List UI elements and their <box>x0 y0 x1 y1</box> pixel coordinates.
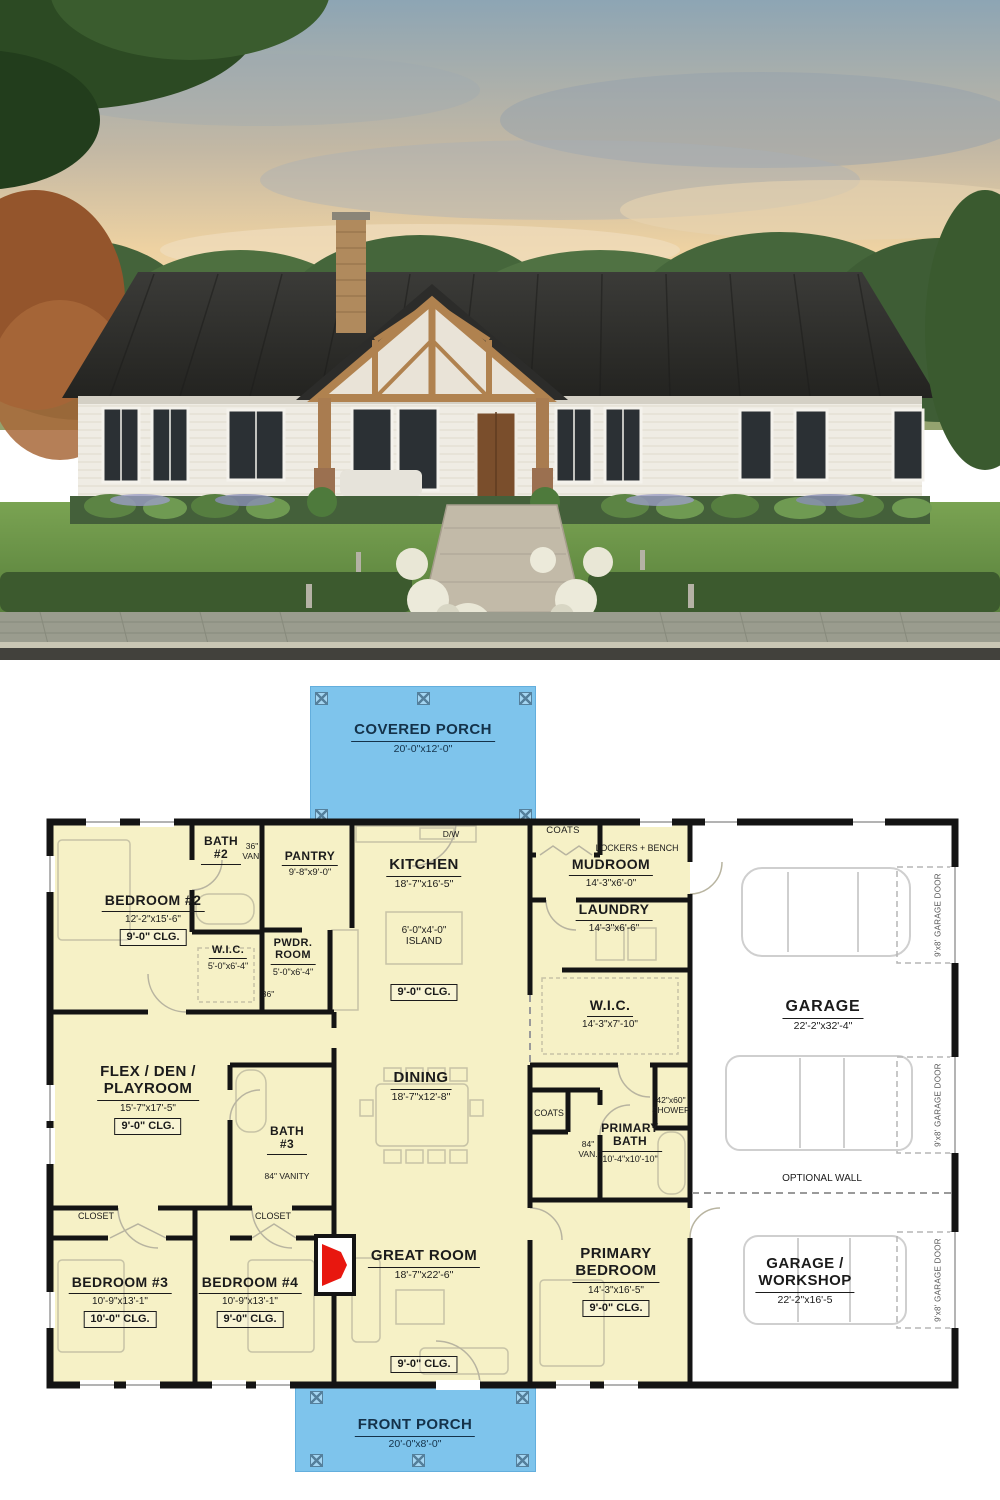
room-name: FLEX / DEN / PLAYROOM <box>97 1064 199 1101</box>
room-name: PRIMARY BEDROOM <box>572 1246 659 1283</box>
bath3-vanity-label: 84" VANITY <box>265 1172 310 1182</box>
room-name: W.I.C. <box>209 944 247 959</box>
room-name: PRIMARY BATH <box>598 1122 662 1152</box>
shower-label: 42"x60" SHOWER <box>652 1096 690 1115</box>
closet2-label: CLOSET <box>255 1211 291 1221</box>
garage-workshop-label: GARAGE / WORKSHOP 22'-2"x16'-5 <box>755 1256 854 1306</box>
dishwasher-label: D/W <box>443 830 460 840</box>
lockers-label: LOCKERS + BENCH <box>596 844 679 854</box>
room-dims: 18'-7"x16'-5" <box>395 877 454 891</box>
laundry-label: LAUNDRY 14'-3"x6'-6" <box>576 902 653 934</box>
room-dims: 12'-2"x15'-6" <box>125 912 181 925</box>
exterior-photo <box>0 0 1000 660</box>
room-dims: 5'-0"x6'-4" <box>273 965 313 977</box>
room-name: W.I.C. <box>587 998 634 1017</box>
covered-porch-label: COVERED PORCH 20'-0"x12'-0" <box>351 722 495 756</box>
yard <box>0 487 1000 660</box>
room-name: GARAGE / WORKSHOP <box>755 1256 854 1293</box>
pwdr-label: PWDR. ROOM 5'-0"x6'-4" <box>271 937 316 977</box>
hedge <box>0 572 412 612</box>
room-dims: 22'-2"x16'-5 <box>777 1293 832 1307</box>
bedroom3-label: BEDROOM #3 10'-9"x13'-1" 10'-0" CLG. <box>69 1275 172 1328</box>
van84-label: 84" VAN. <box>578 1140 597 1159</box>
room-name: PWDR. ROOM <box>271 937 316 965</box>
ceiling-height: 9'-0" CLG. <box>114 1118 181 1135</box>
wic-primary-label: W.I.C. 14'-3"x7'-10" <box>582 998 638 1030</box>
bedroom2-label: BEDROOM #2 12'-2"x15'-6" 9'-0" CLG. <box>102 893 205 946</box>
ceiling-height: 10'-0" CLG. <box>83 1311 156 1328</box>
room-name: MUDROOM <box>569 857 653 876</box>
room-dims: 22'-2"x32'-4" <box>794 1019 853 1033</box>
room-dims: 20'-0"x12'-0" <box>394 742 453 756</box>
bedroom4-label: BEDROOM #4 10'-9"x13'-1" 9'-0" CLG. <box>199 1275 302 1328</box>
room-dims: 10'-9"x13'-1" <box>92 1294 148 1307</box>
floor-plan: COVERED PORCH 20'-0"x12'-0" FRONT PORCH … <box>0 660 1000 1500</box>
garage-label: GARAGE 22'-2"x32'-4" <box>782 998 863 1033</box>
room-name: LAUNDRY <box>576 902 653 921</box>
room-dims: 14'-3"x7'-10" <box>582 1017 638 1030</box>
page: COVERED PORCH 20'-0"x12'-0" FRONT PORCH … <box>0 0 1000 1500</box>
great-room-clg-label: 9'-0" CLG. <box>390 1352 457 1373</box>
room-dims: 10'-4"x10'-10" <box>602 1152 657 1164</box>
room-dims: 5'-0"x6'-4" <box>208 959 248 971</box>
ceiling-height: 9'-0" CLG. <box>119 929 186 946</box>
coats1-label: COATS <box>546 826 580 837</box>
bath2-vanity-label: 36" VAN. <box>242 842 261 861</box>
room-name: PANTRY <box>282 850 338 866</box>
garage-door-label: 9'x8' GARAGE DOOR <box>934 873 943 957</box>
porch-sofa <box>340 470 422 496</box>
kitchen-island-label: 6'-0"x4'-0" ISLAND <box>402 923 447 947</box>
room-dims: 14'-3"x6'-0" <box>586 876 636 889</box>
room-name: KITCHEN <box>386 857 461 877</box>
room-name: DINING <box>391 1070 452 1090</box>
bath3-label: BATH #3 <box>267 1125 307 1155</box>
great-room-label: GREAT ROOM 18'-7"x22'-6" <box>368 1248 480 1282</box>
room-name: BATH #2 <box>201 835 241 865</box>
room-dims: 14'-3"x16'-5" <box>588 1283 644 1296</box>
pwdr-door-label: 36" <box>262 990 274 1000</box>
room-name: FRONT PORCH <box>355 1417 475 1437</box>
front-porch-label: FRONT PORCH 20'-0"x8'-0" <box>355 1417 475 1451</box>
room-dims: 15'-7"x17'-5" <box>120 1101 176 1114</box>
kitchen-label: KITCHEN 18'-7"x16'-5" <box>386 857 461 891</box>
coats2-label: COATS <box>534 1109 564 1119</box>
pantry-label: PANTRY 9'-8"x9'-0" <box>282 850 338 879</box>
room-dims: 14'-3"x6'-6" <box>589 921 639 934</box>
hedge <box>588 572 1000 612</box>
room-name: BEDROOM #3 <box>69 1275 172 1294</box>
dining-label: DINING 18'-7"x12'-8" <box>391 1070 452 1104</box>
mudroom-label: MUDROOM 14'-3"x6'-0" <box>569 857 653 889</box>
chimney <box>336 218 366 333</box>
room-dims: 9'-8"x9'-0" <box>289 866 332 879</box>
primary-bath-label: PRIMARY BATH 10'-4"x10'-10" <box>598 1122 662 1164</box>
room-name: GREAT ROOM <box>368 1248 480 1268</box>
flex-label: FLEX / DEN / PLAYROOM 15'-7"x17'-5" 9'-0… <box>97 1064 199 1135</box>
room-name: BATH #3 <box>267 1125 307 1155</box>
garage-door-label: 9'x8' GARAGE DOOR <box>934 1238 943 1322</box>
street <box>0 648 1000 660</box>
exterior-photo-illustration <box>0 0 1000 660</box>
closet1-label: CLOSET <box>78 1211 114 1221</box>
ceiling-height: 9'-0" CLG. <box>216 1311 283 1328</box>
bath2-label: BATH #2 <box>201 835 241 865</box>
sidewalk <box>0 612 1000 644</box>
room-name: COVERED PORCH <box>351 722 495 742</box>
room-name: BEDROOM #4 <box>199 1275 302 1294</box>
room-dims: 20'-0"x8'-0" <box>389 1437 442 1451</box>
garage-door-label: 9'x8' GARAGE DOOR <box>934 1063 943 1147</box>
kitchen-clg-label: 9'-0" CLG. <box>390 980 457 1001</box>
wic2-label: W.I.C. 5'-0"x6'-4" <box>208 944 248 971</box>
fireplace <box>316 1236 354 1294</box>
room-dims: 18'-7"x12'-8" <box>392 1090 451 1104</box>
room-dims: 10'-9"x13'-1" <box>222 1294 278 1307</box>
primary-bedroom-label: PRIMARY BEDROOM 14'-3"x16'-5" 9'-0" CLG. <box>572 1246 659 1317</box>
room-name: GARAGE <box>782 998 863 1019</box>
optional-wall-label: OPTIONAL WALL <box>782 1173 862 1184</box>
ceiling-height: 9'-0" CLG. <box>582 1300 649 1317</box>
curb <box>0 642 1000 649</box>
room-dims: 18'-7"x22'-6" <box>395 1268 454 1282</box>
room-name: BEDROOM #2 <box>102 893 205 912</box>
